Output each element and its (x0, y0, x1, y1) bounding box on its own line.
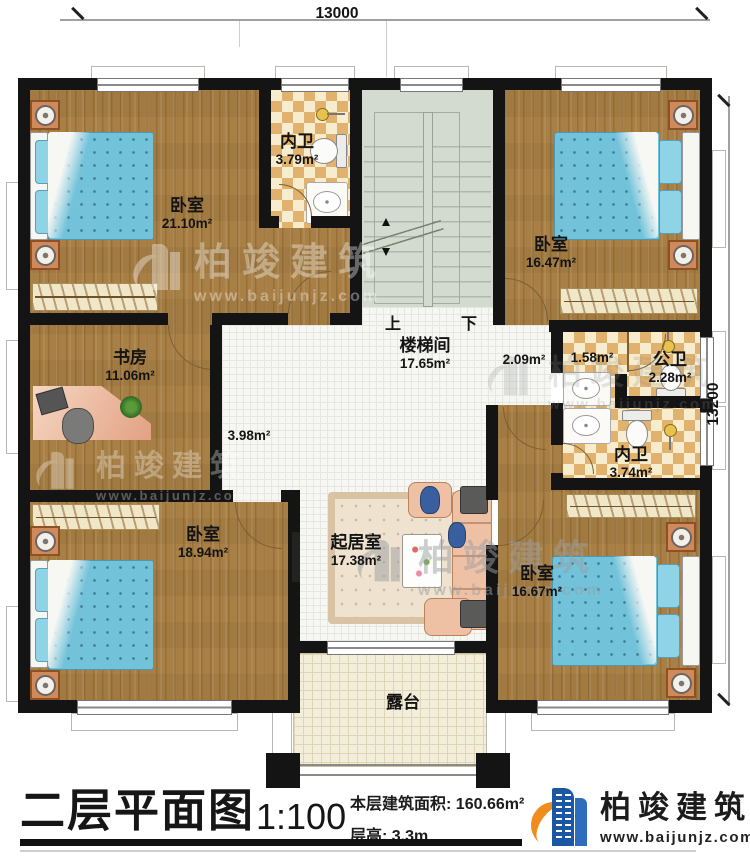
pillow (658, 190, 682, 234)
room-label-bath-public: 公卫 2.28m² (649, 351, 692, 385)
nightstand (30, 100, 60, 130)
sheet-area-line: 本层建筑面积: 160.66m² (350, 797, 524, 813)
nightstand (666, 668, 696, 698)
room-label-bath-br: 内卫 3.74m² (610, 446, 653, 480)
area-label: 本层建筑面积: (350, 796, 451, 813)
stair-arrow-down-icon (382, 248, 390, 256)
stair-rail-outline (374, 112, 460, 304)
lamp-icon (673, 245, 694, 266)
wall-study-top (18, 313, 168, 325)
logo-windows (565, 794, 571, 840)
terrace-sliding-door (327, 641, 455, 655)
wall-bedroom-tr-bottom (549, 320, 712, 332)
coffee-table (402, 534, 442, 588)
nightstand (30, 526, 60, 556)
bed-headboard (682, 132, 700, 240)
door-leaf-bath-public (627, 332, 629, 372)
stair-down-label: 下 (461, 310, 477, 334)
nightstand (666, 522, 696, 552)
wall-bedroom-bl-top (18, 490, 233, 502)
window-top-bedroom-tl (97, 78, 199, 92)
light-fixture-icon (664, 424, 677, 437)
person-figure (448, 522, 466, 548)
extension-line (386, 19, 387, 77)
window-top-bath-tl (281, 78, 349, 92)
sheet-title: 二层平面图 (20, 788, 255, 833)
wall-bath-br-left (551, 403, 563, 445)
window-sill (712, 150, 726, 248)
brand-logo-icon (534, 786, 592, 852)
light-cord (327, 113, 345, 115)
lamp-icon (35, 531, 56, 552)
wall-corridor-bottom (330, 313, 350, 325)
wall-vanity-left (551, 332, 563, 373)
wall-corridor-bottom (222, 313, 288, 325)
room-label-bedroom-br: 卧室 16.67m² (512, 565, 562, 599)
nightstand (668, 100, 698, 130)
closet-rod (570, 506, 693, 508)
tv (292, 532, 300, 582)
stair-up-label: 上 (385, 310, 401, 334)
area-label-vanity: 1.58m² (571, 350, 614, 365)
room-label-stair: 楼梯间 17.65m² (400, 337, 451, 371)
sink (572, 378, 600, 399)
logo-tower-2 (575, 798, 587, 846)
wall-bath-tl-bottom (259, 216, 279, 228)
room-label-living: 起居室 17.38m² (331, 534, 382, 568)
wall-bath-tl-left (259, 90, 271, 228)
wall-study-top (212, 313, 222, 325)
lamp-icon (35, 675, 56, 696)
window-sill (531, 713, 675, 731)
logo-windows (556, 794, 562, 840)
nightstand (30, 670, 60, 700)
area-value: 160.66m² (456, 796, 525, 813)
room-label-bedroom-tl: 卧室 21.10m² (162, 197, 212, 231)
closet (32, 283, 158, 311)
sheet-scale: 1:100 (256, 799, 346, 835)
closet-rod (36, 517, 157, 519)
area-label-hall: 3.98m² (228, 428, 271, 443)
light-fixture-icon (316, 108, 329, 121)
pillow (658, 140, 682, 184)
brand-name: 柏竣建筑 (600, 792, 750, 823)
terrace-railing (300, 774, 476, 776)
terrace-railing (300, 764, 476, 766)
right-dimension-value: 13200 (705, 375, 723, 433)
lamp-icon (35, 105, 56, 126)
title-underline-thin (20, 850, 696, 852)
wall-bath-divider (615, 396, 700, 408)
nightstand (30, 240, 60, 270)
bed-sheet-fold (616, 132, 658, 238)
room-label-bath-tl: 内卫 3.79m² (276, 133, 319, 167)
floor-plan-sheet: 13000 13200 (0, 0, 750, 860)
closet (566, 494, 696, 518)
wall-bath-tl-bottom (311, 216, 350, 228)
window-sill (712, 556, 726, 664)
terrace-post (476, 753, 510, 788)
wall-bedroom-br-left (486, 405, 498, 500)
room-label-bedroom-tr: 卧室 16.47m² (526, 236, 576, 270)
bed-sheet-fold (614, 556, 656, 664)
wall-bedroom-br-left (486, 545, 498, 700)
brand-url: www.baijunjz.com (600, 830, 750, 845)
room-label-terrace: 露台 (386, 694, 420, 713)
window-sill (71, 713, 238, 731)
window-bottom-bedroom-bl (77, 700, 232, 715)
closet-rod (35, 296, 154, 298)
wall-bedroom-bl-right (288, 490, 300, 700)
light-cord (669, 436, 671, 450)
bed-sheet-fold (48, 132, 90, 238)
dimension-tick (71, 7, 84, 20)
stair-stringer (423, 112, 433, 307)
room-label-study: 书房 11.06m² (105, 349, 155, 383)
toilet-bowl (626, 420, 648, 448)
sink (313, 191, 341, 213)
title-underline (20, 839, 522, 846)
bed-headboard (682, 556, 700, 666)
side-table (460, 486, 488, 514)
pillow (656, 614, 680, 658)
dimension-tick (695, 7, 708, 20)
area-label-corridor: 2.09m² (503, 352, 546, 367)
pillow (656, 564, 680, 608)
right-dimension-line (728, 96, 730, 706)
top-dimension-value: 13000 (282, 5, 392, 23)
terrace-post (266, 753, 300, 788)
desk-chair (62, 408, 94, 444)
window-top-stair (400, 78, 463, 92)
extension-line (239, 19, 240, 47)
sink (572, 415, 600, 436)
closet (560, 288, 698, 314)
bed-sheet-fold (48, 560, 90, 668)
window-bottom-bedroom-br (537, 700, 669, 715)
window-top-bedroom-tr (561, 78, 661, 92)
lamp-icon (671, 673, 692, 694)
lamp-icon (673, 105, 694, 126)
wall-stair-right (493, 90, 505, 325)
wall-stair-left (350, 90, 362, 325)
plant-icon (120, 396, 142, 418)
lamp-icon (671, 527, 692, 548)
wall-study-right (210, 325, 222, 502)
side-table (460, 600, 488, 628)
nightstand (668, 240, 698, 270)
stair-arrow-up-icon (382, 218, 390, 226)
room-label-bedroom-bl: 卧室 18.94m² (178, 526, 228, 560)
lamp-icon (35, 245, 56, 266)
wall-exterior-left (18, 78, 30, 713)
wall-living-bottom (288, 641, 327, 653)
closet-rod (564, 301, 695, 303)
person-figure (420, 486, 440, 514)
